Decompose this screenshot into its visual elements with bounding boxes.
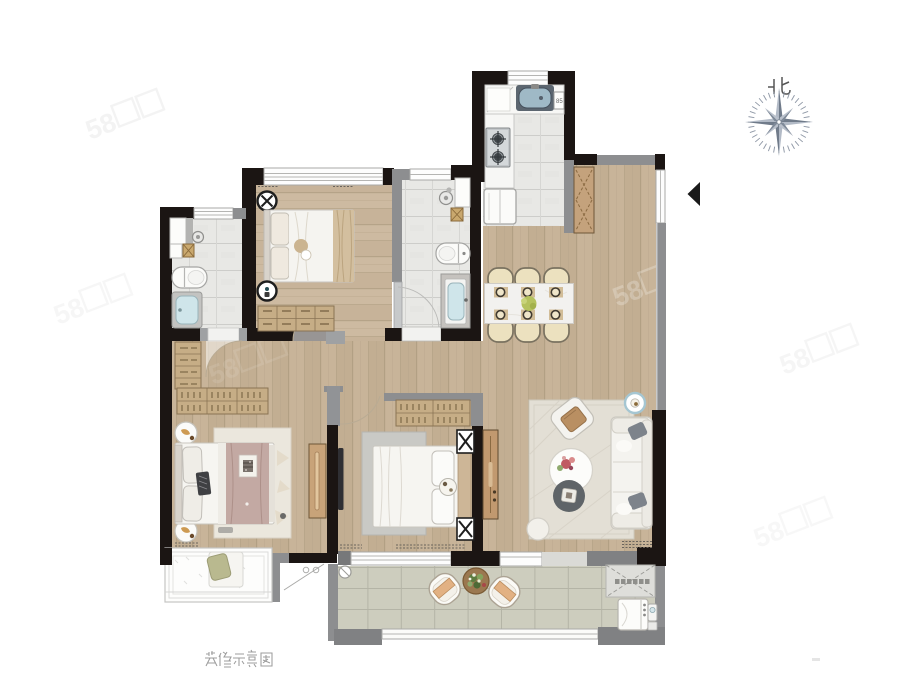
svg-text:85: 85 [556, 99, 563, 105]
